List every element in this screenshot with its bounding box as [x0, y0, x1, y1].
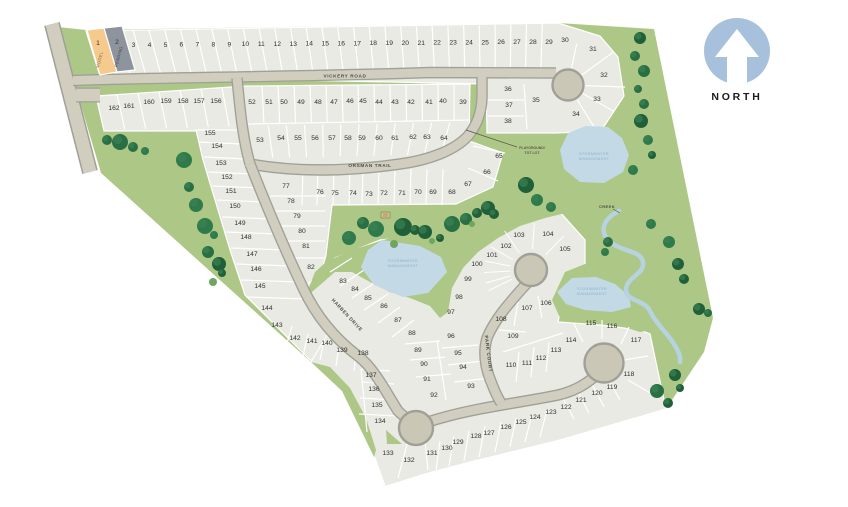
svg-text:106: 106 — [540, 300, 551, 307]
svg-text:127: 127 — [483, 430, 494, 437]
svg-text:120: 120 — [591, 390, 602, 397]
svg-text:56: 56 — [311, 135, 319, 142]
svg-text:118: 118 — [624, 371, 635, 378]
svg-text:112: 112 — [536, 355, 547, 362]
svg-text:156: 156 — [210, 98, 221, 105]
svg-text:2: 2 — [115, 39, 119, 46]
svg-text:62: 62 — [409, 134, 417, 141]
svg-text:128: 128 — [470, 433, 481, 440]
svg-text:100: 100 — [471, 261, 482, 268]
svg-text:MANAGEMENT: MANAGEMENT — [579, 157, 610, 161]
svg-text:3: 3 — [132, 42, 136, 49]
svg-text:147: 147 — [246, 251, 257, 258]
svg-text:92: 92 — [430, 392, 438, 399]
svg-text:159: 159 — [160, 98, 171, 105]
svg-text:90: 90 — [420, 361, 428, 368]
svg-text:102: 102 — [500, 243, 511, 250]
svg-text:134: 134 — [374, 418, 385, 425]
svg-text:72: 72 — [380, 190, 388, 197]
svg-text:139: 139 — [336, 347, 347, 354]
svg-text:101: 101 — [486, 252, 497, 259]
svg-text:25: 25 — [481, 39, 489, 46]
svg-text:152: 152 — [221, 174, 232, 181]
svg-text:161: 161 — [123, 103, 134, 110]
svg-text:64: 64 — [440, 135, 448, 142]
svg-text:15: 15 — [322, 41, 330, 48]
svg-text:76: 76 — [316, 189, 324, 196]
svg-text:46: 46 — [346, 98, 354, 105]
svg-text:77: 77 — [282, 183, 290, 190]
svg-text:89: 89 — [414, 347, 422, 354]
svg-text:ORSMAN TRAIL: ORSMAN TRAIL — [348, 163, 391, 168]
svg-text:113: 113 — [551, 347, 562, 354]
svg-text:131: 131 — [426, 450, 437, 457]
svg-text:88: 88 — [408, 330, 416, 337]
svg-text:78: 78 — [287, 198, 295, 205]
svg-text:41: 41 — [425, 99, 433, 106]
svg-text:40: 40 — [439, 98, 447, 105]
svg-text:17: 17 — [353, 40, 361, 47]
svg-text:32: 32 — [600, 72, 608, 79]
svg-text:4: 4 — [148, 42, 152, 49]
svg-text:27: 27 — [513, 39, 521, 46]
svg-text:130: 130 — [441, 445, 452, 452]
svg-text:80: 80 — [298, 228, 306, 235]
svg-text:151: 151 — [225, 188, 236, 195]
svg-text:68: 68 — [448, 189, 456, 196]
svg-text:125: 125 — [515, 419, 526, 426]
svg-text:129: 129 — [452, 439, 463, 446]
svg-text:104: 104 — [542, 231, 553, 238]
svg-text:7: 7 — [196, 42, 200, 49]
svg-text:48: 48 — [314, 99, 322, 106]
svg-text:53: 53 — [256, 137, 264, 144]
svg-text:83: 83 — [339, 278, 347, 285]
svg-text:69: 69 — [429, 189, 437, 196]
svg-text:105: 105 — [559, 246, 570, 253]
svg-text:39: 39 — [459, 99, 467, 106]
svg-text:5: 5 — [164, 42, 168, 49]
svg-text:142: 142 — [289, 335, 300, 342]
svg-text:50: 50 — [280, 99, 288, 106]
svg-text:111: 111 — [522, 360, 532, 367]
svg-text:79: 79 — [293, 213, 301, 220]
svg-text:STORMWATER: STORMWATER — [577, 287, 607, 291]
svg-text:119: 119 — [607, 384, 618, 391]
svg-text:38: 38 — [504, 118, 512, 125]
svg-text:29: 29 — [545, 39, 553, 46]
svg-text:TOT LOT: TOT LOT — [525, 151, 541, 155]
svg-text:126: 126 — [500, 424, 511, 431]
svg-text:55: 55 — [294, 135, 302, 142]
svg-text:107: 107 — [521, 305, 532, 312]
svg-text:85: 85 — [364, 295, 372, 302]
svg-text:9: 9 — [228, 41, 232, 48]
svg-text:11: 11 — [258, 41, 265, 48]
svg-text:84: 84 — [351, 286, 359, 293]
svg-text:57: 57 — [328, 135, 336, 142]
svg-text:160: 160 — [143, 99, 154, 106]
svg-text:28: 28 — [529, 39, 537, 46]
svg-text:133: 133 — [382, 450, 393, 457]
svg-text:91: 91 — [423, 376, 431, 383]
svg-text:162: 162 — [108, 105, 119, 112]
svg-text:81: 81 — [302, 243, 310, 250]
svg-text:157: 157 — [193, 98, 204, 105]
svg-text:122: 122 — [560, 404, 571, 411]
svg-text:8: 8 — [212, 41, 216, 48]
svg-text:MANAGEMENT: MANAGEMENT — [577, 292, 608, 296]
svg-text:44: 44 — [375, 99, 383, 106]
svg-text:93: 93 — [467, 383, 475, 390]
svg-text:145: 145 — [254, 283, 265, 290]
svg-text:137: 137 — [365, 372, 376, 379]
svg-text:140: 140 — [321, 340, 332, 347]
svg-text:75: 75 — [331, 190, 339, 197]
svg-text:136: 136 — [368, 386, 379, 393]
svg-text:67: 67 — [464, 181, 472, 188]
svg-text:13: 13 — [290, 41, 298, 48]
svg-text:138: 138 — [357, 350, 368, 357]
svg-text:60: 60 — [375, 135, 383, 142]
svg-text:19: 19 — [385, 40, 393, 47]
svg-text:158: 158 — [177, 98, 188, 105]
svg-text:94: 94 — [459, 364, 467, 371]
svg-text:124: 124 — [529, 414, 540, 421]
svg-text:42: 42 — [407, 99, 415, 106]
svg-text:12: 12 — [274, 41, 282, 48]
svg-text:132: 132 — [403, 457, 414, 464]
svg-text:59: 59 — [358, 135, 366, 142]
svg-text:150: 150 — [229, 203, 240, 210]
svg-text:74: 74 — [349, 190, 357, 197]
svg-text:116: 116 — [607, 323, 618, 330]
svg-text:18: 18 — [369, 40, 377, 47]
svg-text:153: 153 — [215, 160, 226, 167]
svg-text:51: 51 — [265, 99, 273, 106]
svg-text:47: 47 — [330, 99, 338, 106]
svg-text:61: 61 — [391, 135, 399, 142]
svg-text:35: 35 — [532, 97, 540, 104]
svg-text:43: 43 — [391, 99, 399, 106]
svg-text:123: 123 — [545, 409, 556, 416]
svg-text:20: 20 — [401, 40, 409, 47]
svg-text:23: 23 — [449, 40, 457, 47]
svg-text:154: 154 — [211, 143, 222, 150]
svg-text:97: 97 — [447, 309, 455, 316]
svg-text:71: 71 — [398, 190, 406, 197]
svg-text:21: 21 — [417, 40, 425, 47]
svg-text:NORTH: NORTH — [711, 91, 762, 103]
svg-text:66: 66 — [483, 169, 491, 176]
svg-text:115: 115 — [586, 320, 597, 327]
svg-text:143: 143 — [271, 322, 282, 329]
svg-text:148: 148 — [240, 234, 251, 241]
svg-text:37: 37 — [505, 102, 513, 109]
svg-text:86: 86 — [380, 303, 388, 310]
svg-text:144: 144 — [261, 305, 272, 312]
svg-text:36: 36 — [504, 86, 512, 93]
svg-text:45: 45 — [359, 98, 367, 105]
svg-text:70: 70 — [414, 189, 422, 196]
svg-text:96: 96 — [447, 333, 455, 340]
svg-text:117: 117 — [631, 337, 642, 344]
svg-text:58: 58 — [344, 135, 352, 142]
svg-text:CREEK: CREEK — [599, 204, 615, 209]
svg-text:30: 30 — [561, 37, 569, 44]
svg-text:34: 34 — [572, 111, 580, 118]
svg-text:103: 103 — [513, 232, 524, 239]
svg-text:141: 141 — [306, 338, 317, 345]
svg-text:149: 149 — [234, 220, 245, 227]
svg-text:STORMWATER: STORMWATER — [579, 152, 609, 156]
svg-text:135: 135 — [371, 402, 382, 409]
svg-text:98: 98 — [455, 294, 463, 301]
svg-text:52: 52 — [248, 99, 256, 106]
svg-text:108: 108 — [495, 316, 506, 323]
svg-text:STORMWATER: STORMWATER — [388, 259, 418, 263]
svg-text:73: 73 — [365, 191, 373, 198]
svg-text:33: 33 — [593, 96, 601, 103]
svg-text:16: 16 — [337, 40, 345, 47]
svg-text:155: 155 — [204, 130, 215, 137]
svg-text:99: 99 — [464, 276, 472, 283]
svg-text:22: 22 — [433, 40, 441, 47]
svg-text:10: 10 — [242, 41, 250, 48]
svg-text:95: 95 — [454, 350, 462, 357]
svg-text:PLAYGROUND/: PLAYGROUND/ — [519, 146, 545, 150]
svg-text:146: 146 — [250, 266, 261, 273]
svg-text:109: 109 — [507, 333, 518, 340]
svg-text:65: 65 — [495, 153, 503, 160]
svg-text:82: 82 — [307, 264, 315, 271]
svg-text:24: 24 — [465, 40, 473, 47]
svg-text:49: 49 — [297, 99, 305, 106]
svg-text:121: 121 — [575, 397, 586, 404]
svg-text:1: 1 — [96, 40, 100, 47]
svg-text:87: 87 — [394, 317, 402, 324]
svg-text:110: 110 — [506, 362, 517, 369]
svg-text:6: 6 — [180, 42, 184, 49]
svg-text:26: 26 — [497, 39, 505, 46]
svg-text:MANAGEMENT: MANAGEMENT — [388, 264, 419, 268]
svg-text:VICKERY ROAD: VICKERY ROAD — [324, 74, 367, 79]
svg-text:14: 14 — [306, 41, 314, 48]
svg-text:63: 63 — [423, 134, 431, 141]
svg-text:31: 31 — [589, 46, 597, 53]
svg-text:114: 114 — [566, 337, 577, 344]
svg-text:54: 54 — [277, 135, 285, 142]
